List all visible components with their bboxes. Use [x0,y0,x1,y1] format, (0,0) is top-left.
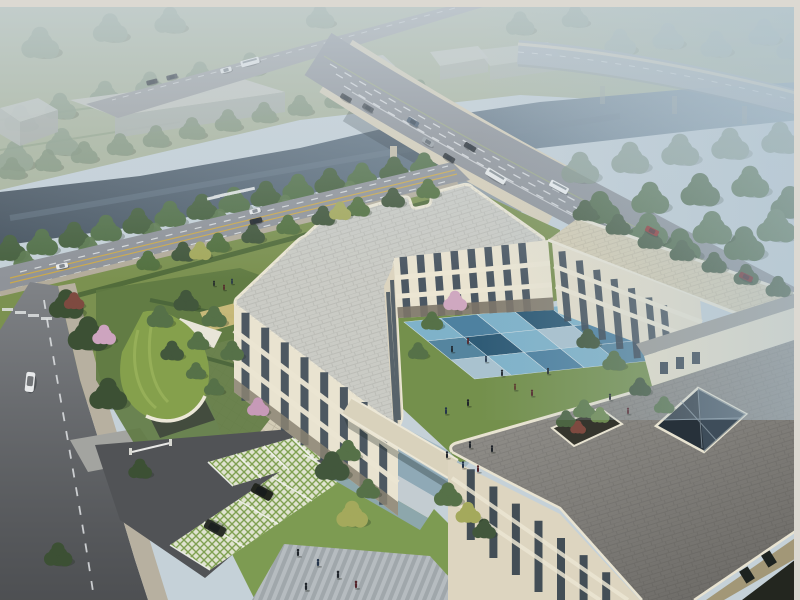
rendering-stage [0,0,800,600]
frame-right [794,0,800,600]
frame-top [0,0,800,7]
architectural-rendering [0,0,800,600]
haze-right [480,0,800,420]
